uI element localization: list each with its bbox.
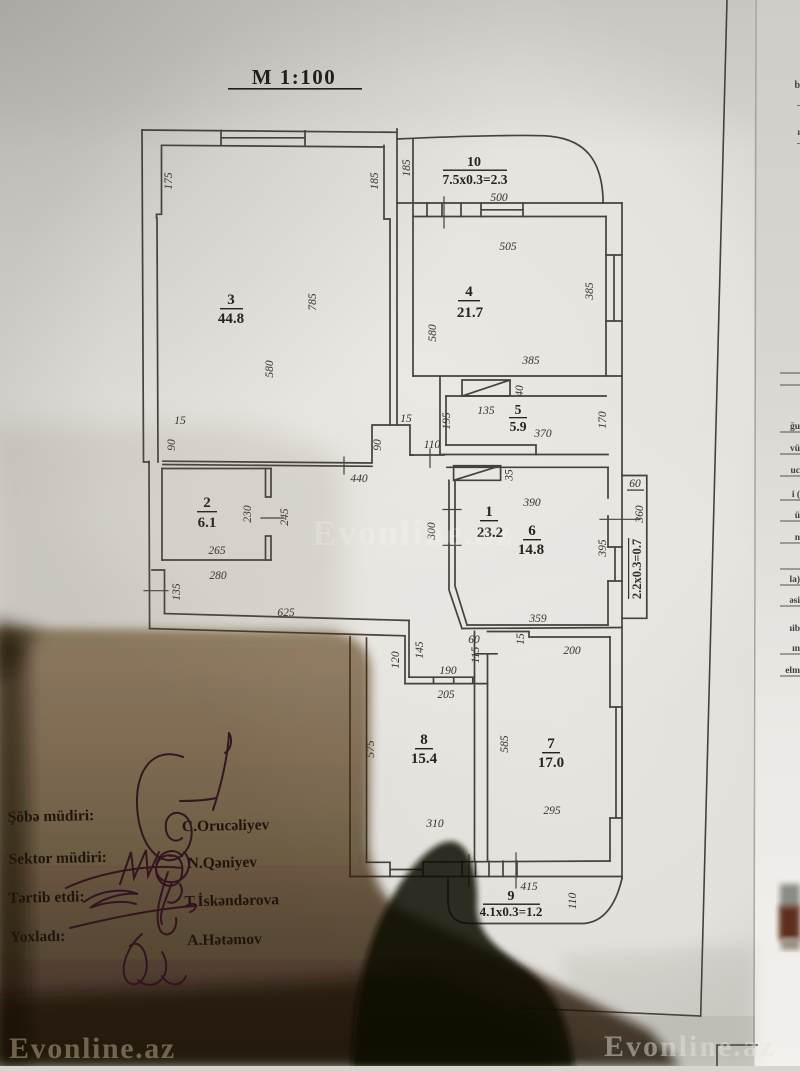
svg-text:9: 9 <box>508 889 515 904</box>
svg-text:120: 120 <box>390 651 402 669</box>
svg-text:b: b <box>794 80 800 91</box>
svg-text:205: 205 <box>437 689 455 701</box>
svg-text:40: 40 <box>514 385 526 397</box>
svg-text:6: 6 <box>528 523 536 539</box>
svg-text:Evonline.az: Evonline.az <box>9 1032 176 1065</box>
svg-text:580: 580 <box>264 360 276 378</box>
svg-text:35: 35 <box>504 469 516 482</box>
svg-text:90: 90 <box>372 439 384 451</box>
svg-text:5.9: 5.9 <box>510 419 527 434</box>
svg-text:60: 60 <box>629 478 641 490</box>
svg-text:115: 115 <box>470 647 482 664</box>
svg-text:385: 385 <box>584 282 596 301</box>
svg-text:505: 505 <box>499 241 517 253</box>
svg-text:Tərtib etdi:: Tərtib etdi: <box>8 888 85 907</box>
svg-text:2.2x0.3=0.7: 2.2x0.3=0.7 <box>630 539 644 599</box>
svg-text:370: 370 <box>533 428 552 440</box>
svg-text:580: 580 <box>427 324 439 342</box>
svg-text:170: 170 <box>597 411 609 429</box>
svg-text:440: 440 <box>350 473 368 485</box>
svg-text:500: 500 <box>490 192 508 204</box>
svg-text:185: 185 <box>369 172 381 190</box>
svg-text:n: n <box>795 533 800 543</box>
svg-text:15.4: 15.4 <box>411 751 438 767</box>
svg-text:4: 4 <box>465 284 473 300</box>
svg-text:145: 145 <box>414 641 426 659</box>
svg-text:T.İskəndərova: T.İskəndərova <box>184 891 279 910</box>
svg-text:785: 785 <box>307 293 319 311</box>
svg-text:175: 175 <box>163 172 175 190</box>
svg-text:M 1:100: M 1:100 <box>252 65 337 89</box>
svg-text:7: 7 <box>547 736 555 752</box>
svg-text:44.8: 44.8 <box>218 311 244 327</box>
svg-text:əsi: əsi <box>789 596 800 606</box>
svg-text:3: 3 <box>227 292 235 308</box>
svg-text:200: 200 <box>563 645 581 657</box>
svg-text:Evonline.az: Evonline.az <box>604 1030 775 1063</box>
svg-text:185: 185 <box>401 159 413 177</box>
svg-text:Sektor müdiri:: Sektor müdiri: <box>8 849 107 868</box>
svg-text:5: 5 <box>515 402 522 417</box>
svg-text:i (: i ( <box>792 489 800 500</box>
svg-text:7.5x0.3=2.3: 7.5x0.3=2.3 <box>442 172 507 187</box>
svg-text:ğu: ğu <box>790 422 800 432</box>
svg-text:385: 385 <box>521 355 540 367</box>
svg-text:N.Qəniyev: N.Qəniyev <box>187 854 257 872</box>
svg-text:195: 195 <box>441 412 453 430</box>
svg-text:Şöbə müdiri:: Şöbə müdiri: <box>7 807 94 826</box>
svg-text:110: 110 <box>567 893 579 910</box>
svg-text:14.8: 14.8 <box>518 542 544 558</box>
svg-text:390: 390 <box>522 497 541 509</box>
svg-text:359: 359 <box>528 613 547 625</box>
svg-text:21.7: 21.7 <box>457 305 484 321</box>
svg-text:60: 60 <box>468 634 480 646</box>
svg-text:C.Orucəliyev: C.Orucəliyev <box>182 816 270 835</box>
svg-text:ın: ın <box>792 644 800 654</box>
svg-text:elm: elm <box>785 666 800 676</box>
svg-text:295: 295 <box>543 805 561 817</box>
svg-text:la): la) <box>789 574 800 585</box>
svg-text:585: 585 <box>499 735 511 753</box>
svg-text:395: 395 <box>597 539 609 558</box>
svg-text:Evonline.az: Evonline.az <box>312 513 513 553</box>
svg-text:Yoxladı:: Yoxladı: <box>10 928 65 946</box>
svg-text:4.1x0.3=1.2: 4.1x0.3=1.2 <box>480 904 543 919</box>
svg-text:15: 15 <box>515 633 527 645</box>
svg-text:10: 10 <box>467 155 481 170</box>
svg-text:310: 310 <box>425 818 444 830</box>
svg-text:vü: vü <box>790 444 800 454</box>
svg-text:15: 15 <box>174 415 186 427</box>
svg-text:uc: uc <box>791 466 800 476</box>
svg-text:190: 190 <box>439 665 457 677</box>
svg-text:ıib: ıib <box>789 624 800 634</box>
svg-text:17.0: 17.0 <box>538 755 564 771</box>
svg-text:15: 15 <box>400 413 412 425</box>
svg-text:415: 415 <box>520 881 538 893</box>
svg-text:110: 110 <box>424 439 441 451</box>
svg-text:135: 135 <box>477 405 495 417</box>
svg-text:360: 360 <box>634 505 646 524</box>
svg-text:A.Hətəmov: A.Hətəmov <box>187 931 262 950</box>
svg-text:ü: ü <box>795 511 800 521</box>
svg-text:8: 8 <box>420 732 428 748</box>
